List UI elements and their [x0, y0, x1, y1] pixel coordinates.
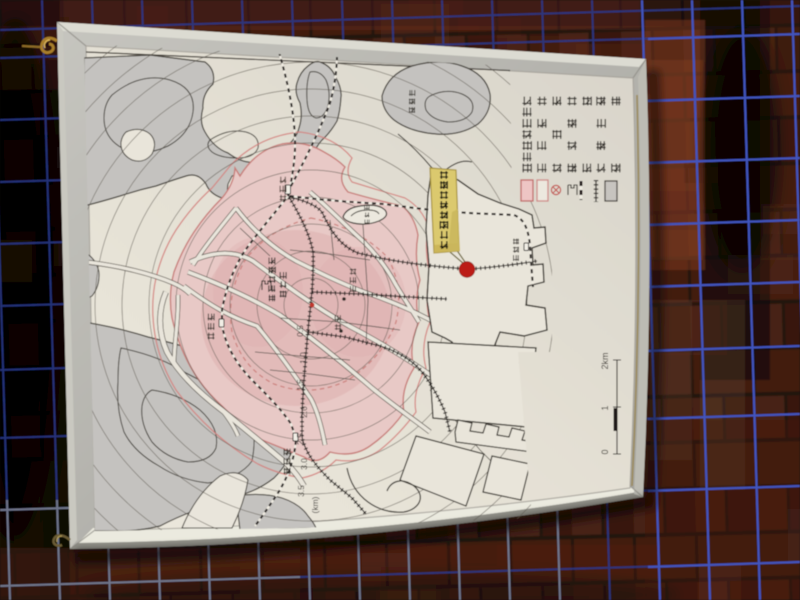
svg-text:1.0: 1.0 [298, 352, 308, 364]
svg-text:(km): (km) [310, 496, 320, 513]
svg-text:0: 0 [600, 449, 610, 454]
svg-text:0.5: 0.5 [295, 325, 305, 337]
svg-text:2km: 2km [600, 352, 610, 369]
svg-text:2.5: 2.5 [295, 433, 305, 445]
svg-text:2.0: 2.0 [299, 406, 309, 418]
svg-text:3.5: 3.5 [296, 485, 306, 497]
svg-text:3.0: 3.0 [299, 458, 309, 470]
svg-text:1: 1 [600, 405, 610, 410]
svg-text:1.5: 1.5 [295, 379, 305, 391]
